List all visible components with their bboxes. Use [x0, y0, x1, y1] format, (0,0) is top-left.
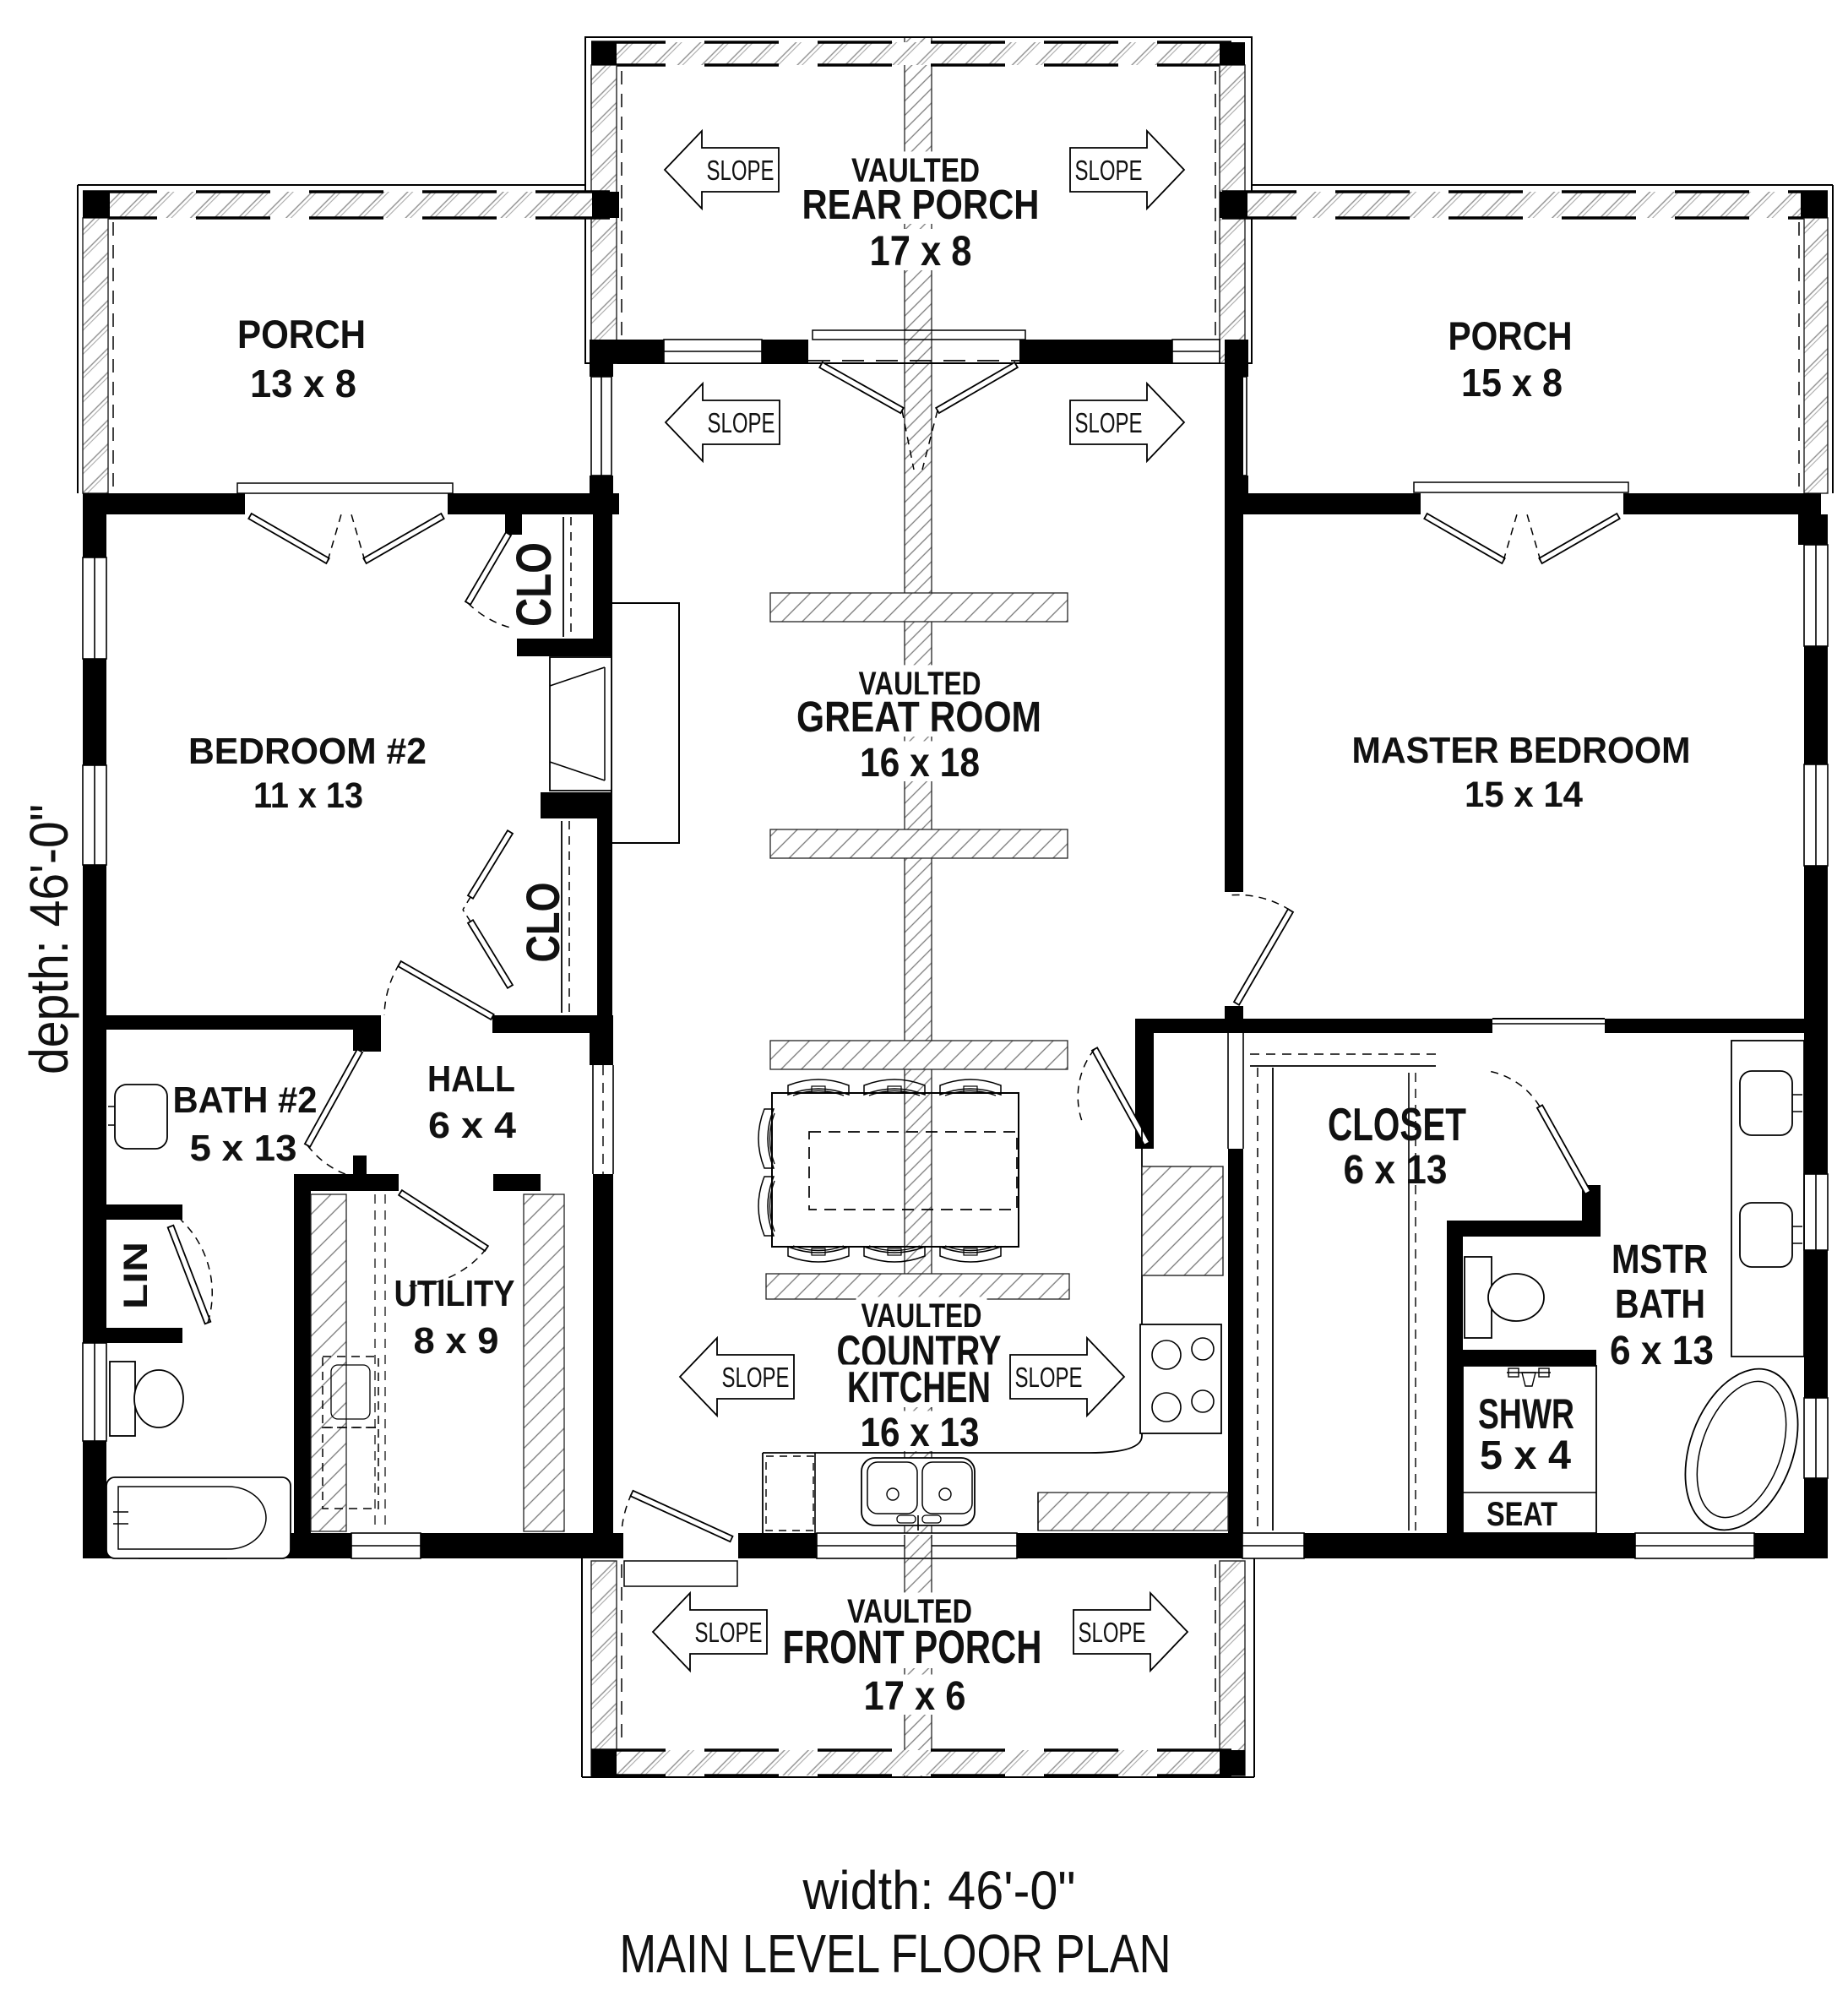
svg-text:MAIN LEVEL FLOOR PLAN: MAIN LEVEL FLOOR PLAN: [620, 1923, 1171, 1984]
svg-text:CLOSET: CLOSET: [1328, 1098, 1466, 1150]
svg-text:SEAT: SEAT: [1487, 1496, 1557, 1533]
svg-text:SLOPE: SLOPE: [1075, 155, 1143, 186]
svg-text:8 x 9: 8 x 9: [414, 1320, 499, 1362]
svg-text:KITCHEN: KITCHEN: [847, 1363, 991, 1412]
svg-text:SLOPE: SLOPE: [695, 1617, 763, 1648]
svg-text:SLOPE: SLOPE: [708, 407, 775, 438]
svg-text:15 x 8: 15 x 8: [1461, 361, 1563, 405]
svg-text:depth: 46'-0": depth: 46'-0": [19, 804, 79, 1074]
svg-text:SLOPE: SLOPE: [707, 155, 775, 186]
svg-text:BATH #2: BATH #2: [173, 1079, 318, 1121]
svg-text:5 x 13: 5 x 13: [190, 1128, 297, 1169]
svg-text:13 x 8: 13 x 8: [250, 362, 356, 405]
svg-text:MASTER BEDROOM: MASTER BEDROOM: [1352, 730, 1691, 771]
svg-text:16 x 18: 16 x 18: [860, 741, 980, 786]
svg-text:17 x 8: 17 x 8: [870, 227, 972, 275]
svg-text:6 x 4: 6 x 4: [428, 1105, 517, 1146]
svg-text:HALL: HALL: [427, 1058, 515, 1100]
svg-text:17 x 6: 17 x 6: [864, 1674, 966, 1719]
svg-text:SHWR: SHWR: [1478, 1390, 1574, 1438]
svg-text:FRONT PORCH: FRONT PORCH: [783, 1620, 1042, 1673]
svg-text:BATH: BATH: [1615, 1282, 1705, 1327]
svg-text:11 x 13: 11 x 13: [253, 775, 363, 816]
svg-text:LIN: LIN: [117, 1242, 155, 1309]
svg-text:CLO: CLO: [507, 542, 562, 627]
svg-text:SLOPE: SLOPE: [1079, 1617, 1146, 1648]
svg-text:6 x 13: 6 x 13: [1344, 1148, 1448, 1193]
svg-text:MSTR: MSTR: [1612, 1237, 1708, 1282]
svg-text:SLOPE: SLOPE: [722, 1362, 790, 1393]
svg-text:15 x 14: 15 x 14: [1465, 775, 1583, 815]
svg-text:SLOPE: SLOPE: [1015, 1362, 1083, 1393]
svg-text:UTILITY: UTILITY: [394, 1273, 515, 1314]
svg-text:PORCH: PORCH: [237, 312, 366, 356]
svg-text:6 x 13: 6 x 13: [1610, 1329, 1714, 1373]
svg-text:width: 46'-0": width: 46'-0": [802, 1860, 1076, 1921]
svg-text:SLOPE: SLOPE: [1075, 407, 1143, 438]
svg-text:BEDROOM #2: BEDROOM #2: [188, 731, 427, 772]
svg-text:16 x 13: 16 x 13: [861, 1411, 980, 1455]
svg-text:GREAT ROOM: GREAT ROOM: [796, 693, 1041, 741]
svg-text:CLO: CLO: [516, 883, 569, 963]
svg-text:REAR PORCH: REAR PORCH: [802, 182, 1040, 228]
svg-text:5 x 4: 5 x 4: [1480, 1433, 1571, 1478]
svg-text:PORCH: PORCH: [1449, 313, 1573, 358]
